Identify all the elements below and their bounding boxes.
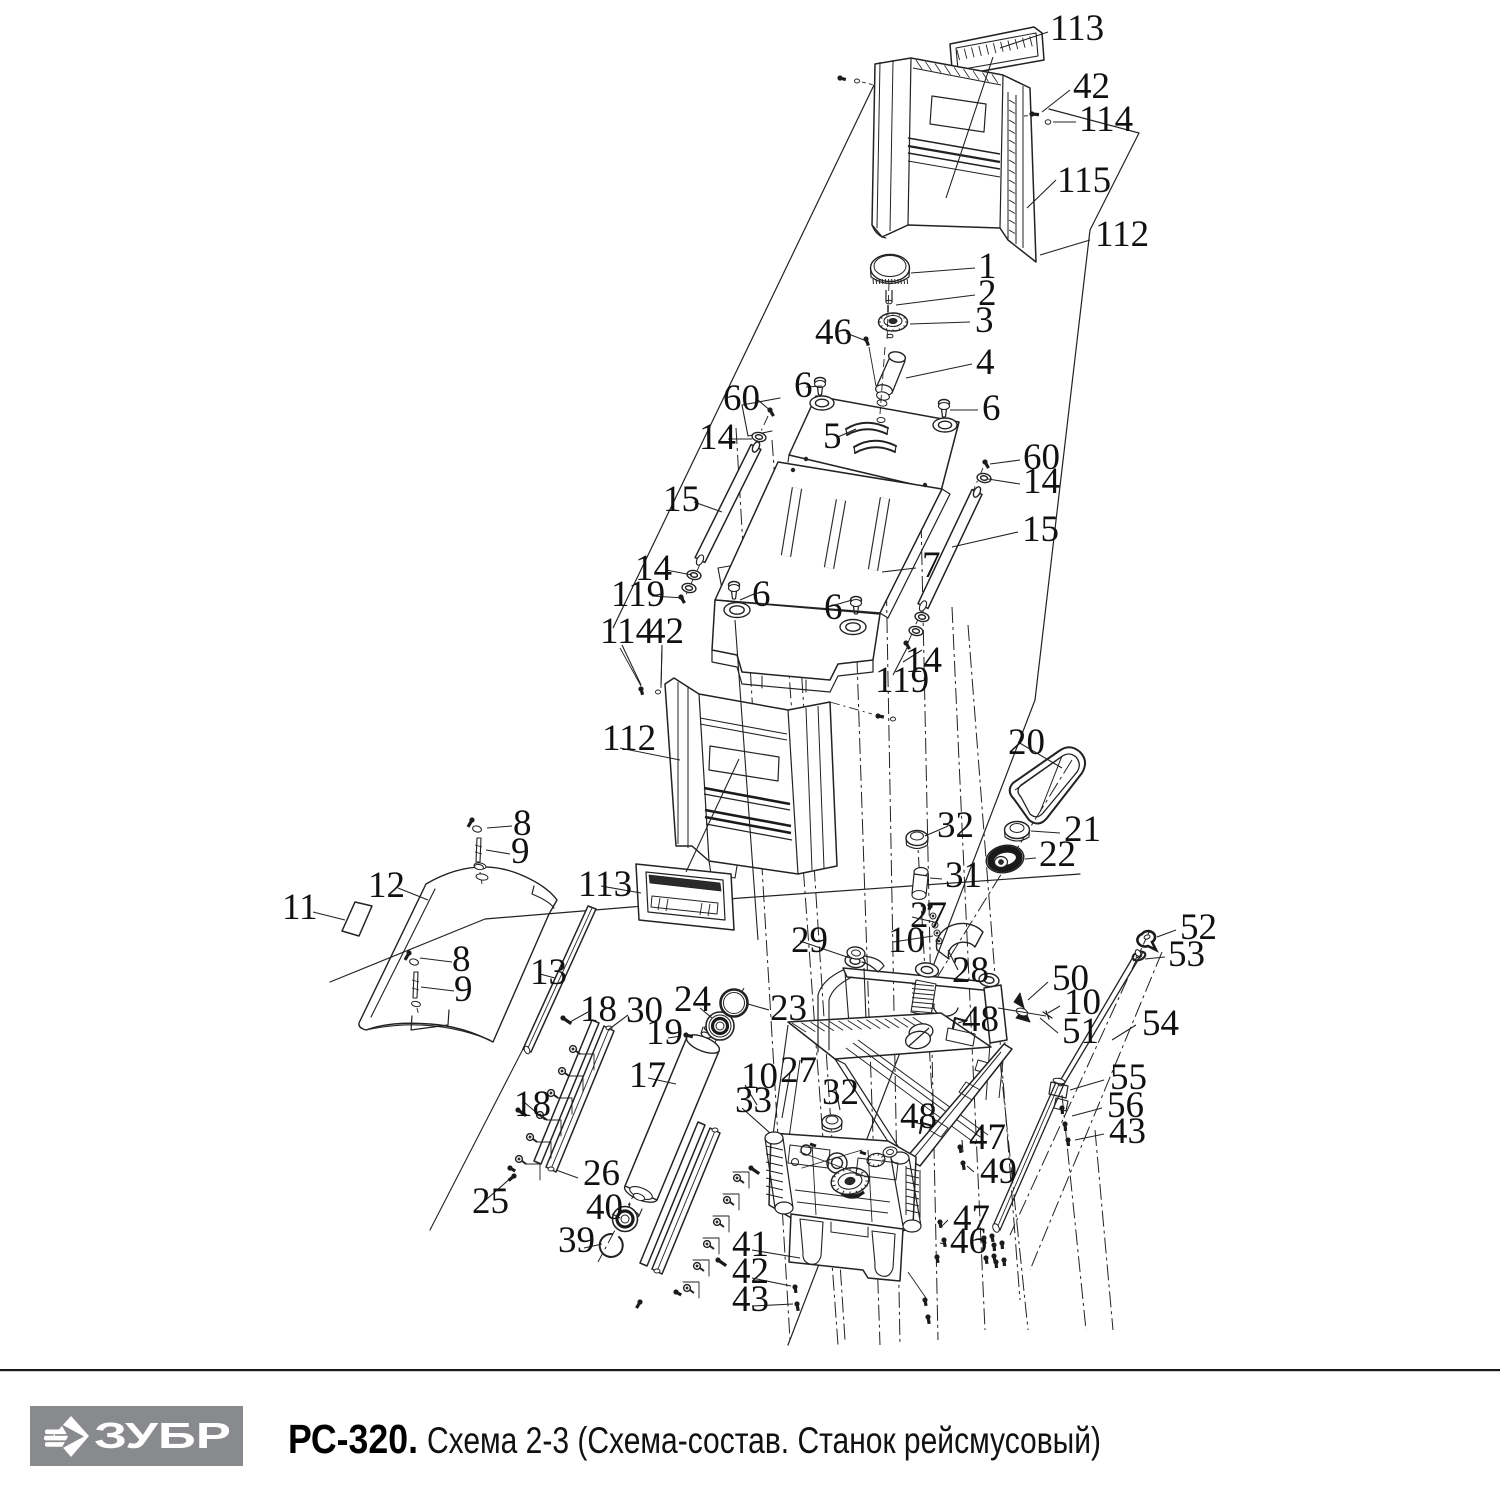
svg-text:29: 29 (791, 920, 828, 961)
svg-text:32: 32 (937, 805, 974, 846)
svg-text:4: 4 (976, 342, 995, 383)
svg-text:9: 9 (511, 831, 530, 872)
svg-text:48: 48 (900, 1096, 937, 1137)
svg-text:114: 114 (1079, 99, 1133, 140)
svg-text:12: 12 (368, 865, 405, 906)
svg-text:25: 25 (472, 1181, 509, 1222)
svg-text:53: 53 (1168, 934, 1205, 975)
svg-text:6: 6 (824, 587, 843, 628)
svg-text:22: 22 (1039, 834, 1076, 875)
svg-text:39: 39 (558, 1220, 595, 1261)
svg-text:РС-320.: РС-320. (288, 1416, 418, 1462)
svg-text:43: 43 (732, 1279, 769, 1320)
svg-text:10: 10 (888, 920, 925, 961)
svg-text:23: 23 (770, 988, 807, 1029)
svg-text:14: 14 (1023, 461, 1060, 502)
svg-text:43: 43 (1109, 1111, 1146, 1152)
svg-text:6: 6 (982, 388, 1001, 429)
svg-text:113: 113 (1050, 8, 1104, 49)
svg-text:11: 11 (282, 887, 318, 928)
svg-text:Схема 2-3 (Схема-состав. Стано: Схема 2-3 (Схема-состав. Станок рейсмусо… (427, 1420, 1101, 1461)
svg-text:19: 19 (646, 1012, 683, 1053)
svg-text:5: 5 (823, 416, 842, 457)
svg-text:6: 6 (752, 574, 771, 615)
svg-text:113: 113 (578, 864, 632, 905)
svg-text:15: 15 (1022, 509, 1059, 550)
svg-text:14: 14 (699, 417, 736, 458)
svg-text:42: 42 (647, 611, 684, 652)
svg-text:9: 9 (454, 969, 473, 1010)
svg-text:7: 7 (922, 545, 941, 586)
svg-text:ЗУБР: ЗУБР (94, 1415, 231, 1456)
svg-text:28: 28 (952, 950, 989, 991)
svg-text:6: 6 (794, 365, 813, 406)
svg-text:48: 48 (962, 999, 999, 1040)
svg-text:31: 31 (945, 855, 982, 896)
svg-text:15: 15 (663, 479, 700, 520)
svg-text:17: 17 (629, 1055, 666, 1096)
svg-text:46: 46 (950, 1221, 987, 1262)
svg-text:3: 3 (975, 300, 994, 341)
svg-text:112: 112 (1095, 214, 1149, 255)
svg-text:119: 119 (875, 660, 929, 701)
svg-text:20: 20 (1008, 722, 1045, 763)
svg-text:27: 27 (780, 1050, 817, 1091)
svg-text:51: 51 (1062, 1011, 1099, 1052)
svg-text:54: 54 (1142, 1003, 1179, 1044)
svg-text:13: 13 (530, 952, 567, 993)
svg-text:49: 49 (980, 1151, 1017, 1192)
svg-text:32: 32 (822, 1072, 859, 1113)
svg-text:18: 18 (580, 989, 617, 1030)
svg-text:33: 33 (735, 1080, 772, 1121)
svg-text:60: 60 (723, 378, 760, 419)
svg-text:112: 112 (602, 718, 656, 759)
svg-text:18: 18 (514, 1084, 551, 1125)
svg-text:119: 119 (611, 574, 665, 615)
svg-text:46: 46 (815, 312, 852, 353)
svg-text:115: 115 (1057, 160, 1111, 201)
